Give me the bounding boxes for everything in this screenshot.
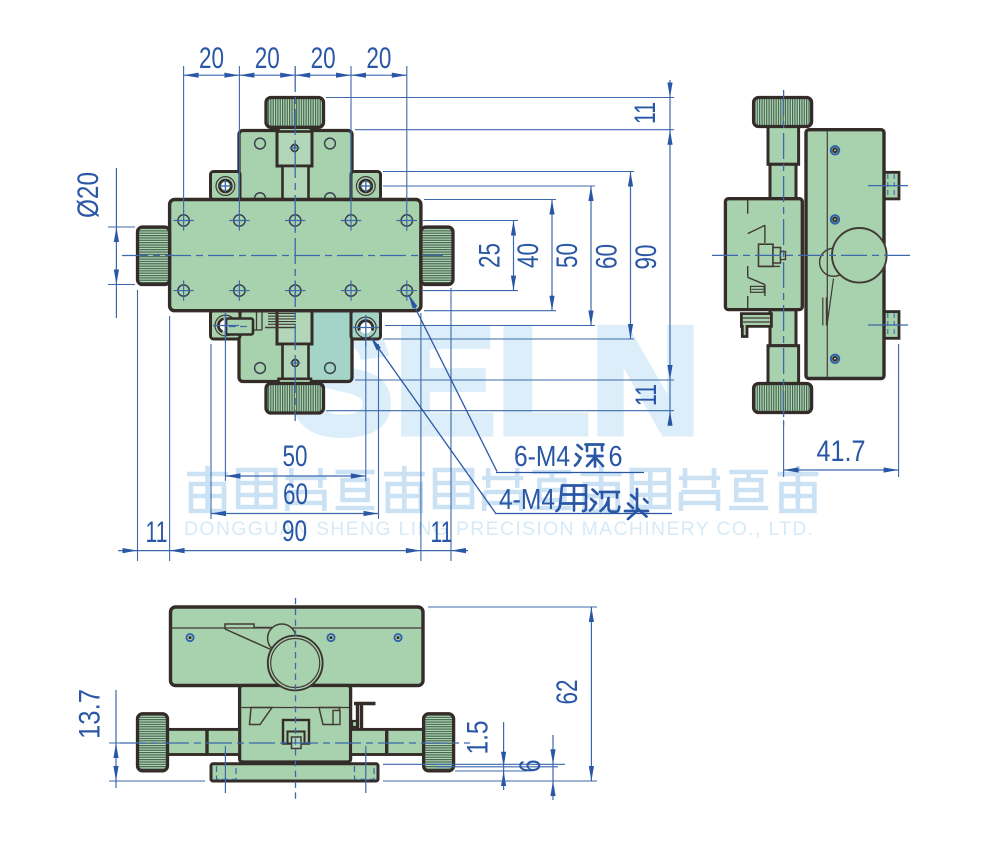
svg-text:11: 11 [630,384,663,406]
svg-text:41.7: 41.7 [817,435,866,468]
svg-text:4-M4: 4-M4 [499,484,555,516]
svg-text:1.5: 1.5 [462,721,495,755]
svg-text:13.7: 13.7 [74,689,107,739]
svg-text:6: 6 [609,441,623,473]
svg-text:20: 20 [366,42,391,75]
svg-text:6-M4: 6-M4 [514,441,570,473]
svg-text:60: 60 [283,478,308,511]
svg-text:60: 60 [591,244,624,269]
svg-text:20: 20 [199,42,224,75]
svg-text:11: 11 [431,516,453,549]
svg-text:6: 6 [514,760,547,773]
svg-text:50: 50 [283,440,308,473]
svg-text:Ø20: Ø20 [72,172,105,218]
svg-text:11: 11 [146,516,168,549]
svg-text:11: 11 [629,102,662,124]
svg-text:20: 20 [311,42,336,75]
svg-text:25: 25 [474,243,507,268]
svg-text:62: 62 [551,680,584,705]
svg-text:90: 90 [282,515,307,548]
svg-text:DONGGUAN SHENG LING PRECISION: DONGGUAN SHENG LING PRECISION MACHINERY … [184,518,814,540]
svg-text:40: 40 [512,243,545,268]
svg-text:20: 20 [255,42,280,75]
svg-text:50: 50 [551,243,584,268]
svg-text:90: 90 [630,245,663,270]
